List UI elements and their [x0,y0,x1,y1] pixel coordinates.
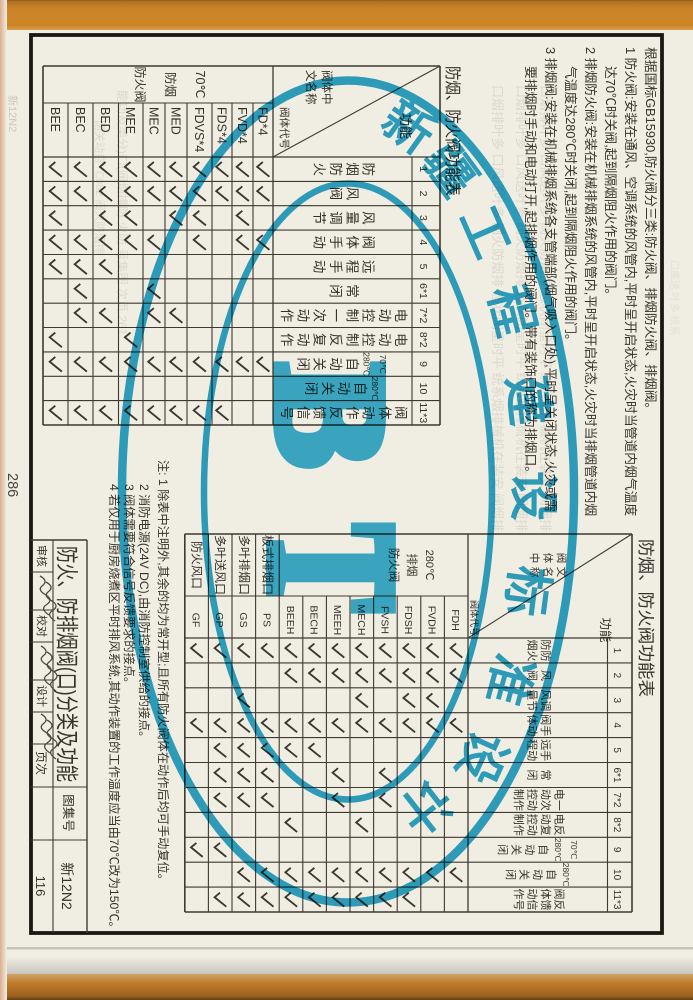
svg-text:BEE: BEE [48,107,62,132]
svg-text:风量调节: 风量调节 [312,211,376,225]
svg-text:风阀: 风阀 [328,187,359,201]
svg-text:280℃: 280℃ [553,838,563,862]
svg-text:70℃: 70℃ [193,71,207,99]
svg-text:常闭: 常闭 [328,284,359,298]
svg-text:MEE: MEE [123,107,137,134]
svg-text:电动控制一次动作: 电动控制一次动作 [279,309,408,323]
svg-text:防烟防火: 防烟防火 [312,162,376,176]
svg-text:8*2: 8*2 [611,817,622,832]
svg-text:11*3: 11*3 [417,402,429,423]
svg-text:防烟、防火阀功能表: 防烟、防火阀功能表 [636,539,655,697]
svg-text:BED: BED [98,107,112,133]
svg-text:GF: GF [190,613,202,628]
svg-text:新12N2: 新12N2 [6,95,20,132]
svg-text:防烟: 防烟 [525,640,553,651]
svg-text:8*2: 8*2 [417,332,429,348]
svg-text:自动关闭: 自动关闭 [504,869,558,880]
svg-text:常闭: 常闭 [525,770,552,781]
svg-text:2 消防电源(24V DC),由消防控制室供给的接点。: 2 消防电源(24V DC),由消防控制室供给的接点。 [137,484,152,743]
svg-text:反复动作: 反复动作 [512,825,566,836]
svg-text:电动控制反复动作: 电动控制反复动作 [279,333,408,347]
svg-text:手动: 手动 [525,750,553,761]
svg-text:280℃: 280℃ [561,863,571,887]
svg-text:1 防火阀:安装在通风、空调系统的风管内,平时呈开启状态,: 1 防火阀:安装在通风、空调系统的风管内,平时呈开启状态,火灾时当管道内烟气温度 [623,47,638,516]
svg-text:阀体中: 阀体中 [528,553,568,564]
svg-text:校对: 校对 [35,615,49,637]
svg-text:T: T [233,525,433,611]
svg-text:MEC: MEC [147,107,161,135]
svg-text:6*1: 6*1 [417,283,429,299]
svg-text:3: 3 [611,698,622,704]
svg-text:GS: GS [237,612,249,627]
svg-text:图集号: 图集号 [61,794,76,832]
svg-text:70℃: 70℃ [569,840,579,859]
svg-text:根据国标GB15930,防火阀分三类:防火阀、排烟防火阀、排: 根据国标GB15930,防火阀分三类:防火阀、排烟防火阀、排烟阀。 [643,47,658,415]
svg-text:7*2: 7*2 [611,792,622,807]
svg-text:电动控制: 电动控制 [512,814,566,825]
svg-text:7*2: 7*2 [417,308,429,324]
svg-text:多叶送风口: 多叶送风口 [213,535,228,595]
svg-text:阀体手动: 阀体手动 [312,236,376,250]
svg-text:2: 2 [611,673,622,679]
svg-text:4 若仅用于厨房烧煮区平时排风系统,其动作装置的工作温度应: 4 若仅用于厨房烧煮区平时排风系统,其动作装置的工作温度应当由70℃改为150℃… [107,484,122,934]
svg-text:5: 5 [611,747,622,753]
svg-text:116: 116 [33,876,48,897]
svg-text:BEC: BEC [73,107,87,133]
svg-text:9: 9 [417,361,429,367]
svg-text:FDH: FDH [449,609,461,631]
svg-text:6*1: 6*1 [611,767,622,782]
svg-text:电动控制: 电动控制 [512,789,566,800]
svg-text:1: 1 [611,648,622,654]
svg-text:注: 1 除表中注明外,其余的均为常开型;且所有防火阀体在: 注: 1 除表中注明外,其余的均为常开型;且所有防火阀体在动作后均可手动复位。 [156,460,171,886]
svg-text:设计: 设计 [35,685,48,707]
svg-text:9: 9 [611,847,622,853]
svg-text:11*3: 11*3 [611,890,622,910]
svg-text:气温度达280℃时关闭,起到隔烟阻火作用的阀门。: 气温度达280℃时关闭,起到隔烟阻火作用的阀门。 [563,66,578,347]
svg-text:防火阀: 防火阀 [133,66,148,102]
svg-text:阀体动作: 阀体动作 [512,889,567,900]
svg-text:4: 4 [611,722,622,728]
svg-text:功能: 功能 [598,617,612,643]
svg-text:防烟: 防烟 [163,72,178,97]
svg-text:B: B [245,364,417,467]
svg-text:防火、防排烟阀(口)分类及功能: 防火、防排烟阀(口)分类及功能 [54,546,80,782]
svg-text:自动关闭: 自动关闭 [496,844,550,855]
svg-text:审核: 审核 [35,545,49,567]
svg-text:4: 4 [417,239,429,245]
svg-text:设: 设 [505,471,561,521]
svg-text:防火风口: 防火风口 [190,541,205,589]
svg-text:建: 建 [497,372,558,428]
svg-text:阀体代号: 阀体代号 [278,107,291,149]
svg-text:10: 10 [417,383,429,395]
svg-text:PS: PS [260,613,272,627]
svg-text:远程手动: 远程手动 [312,260,376,274]
svg-text:FDS*4: FDS*4 [215,107,229,144]
svg-text:标: 标 [496,563,558,620]
svg-text:MED: MED [169,107,183,135]
svg-text:10: 10 [611,869,622,881]
svg-text:5: 5 [417,264,429,270]
svg-text:2 排烟防火阀:安装在机械排烟系统的风管内,平时呈开启状态: 2 排烟防火阀:安装在机械排烟系统的风管内,平时呈开启状态,火灾时当排烟管道内烟 [583,47,598,516]
svg-text:反馈信号: 反馈信号 [512,900,566,911]
svg-text:达70℃时关阀,起到隔烟阻火作用的阀门。: 达70℃时关阀,起到隔烟阻火作用的阀门。 [603,66,618,301]
svg-text:一次动作: 一次动作 [512,800,565,811]
svg-text:新12N2: 新12N2 [59,862,75,910]
svg-text:页次: 页次 [34,751,48,775]
svg-text:FDVS*4: FDVS*4 [192,107,206,152]
svg-text:2: 2 [417,191,429,197]
